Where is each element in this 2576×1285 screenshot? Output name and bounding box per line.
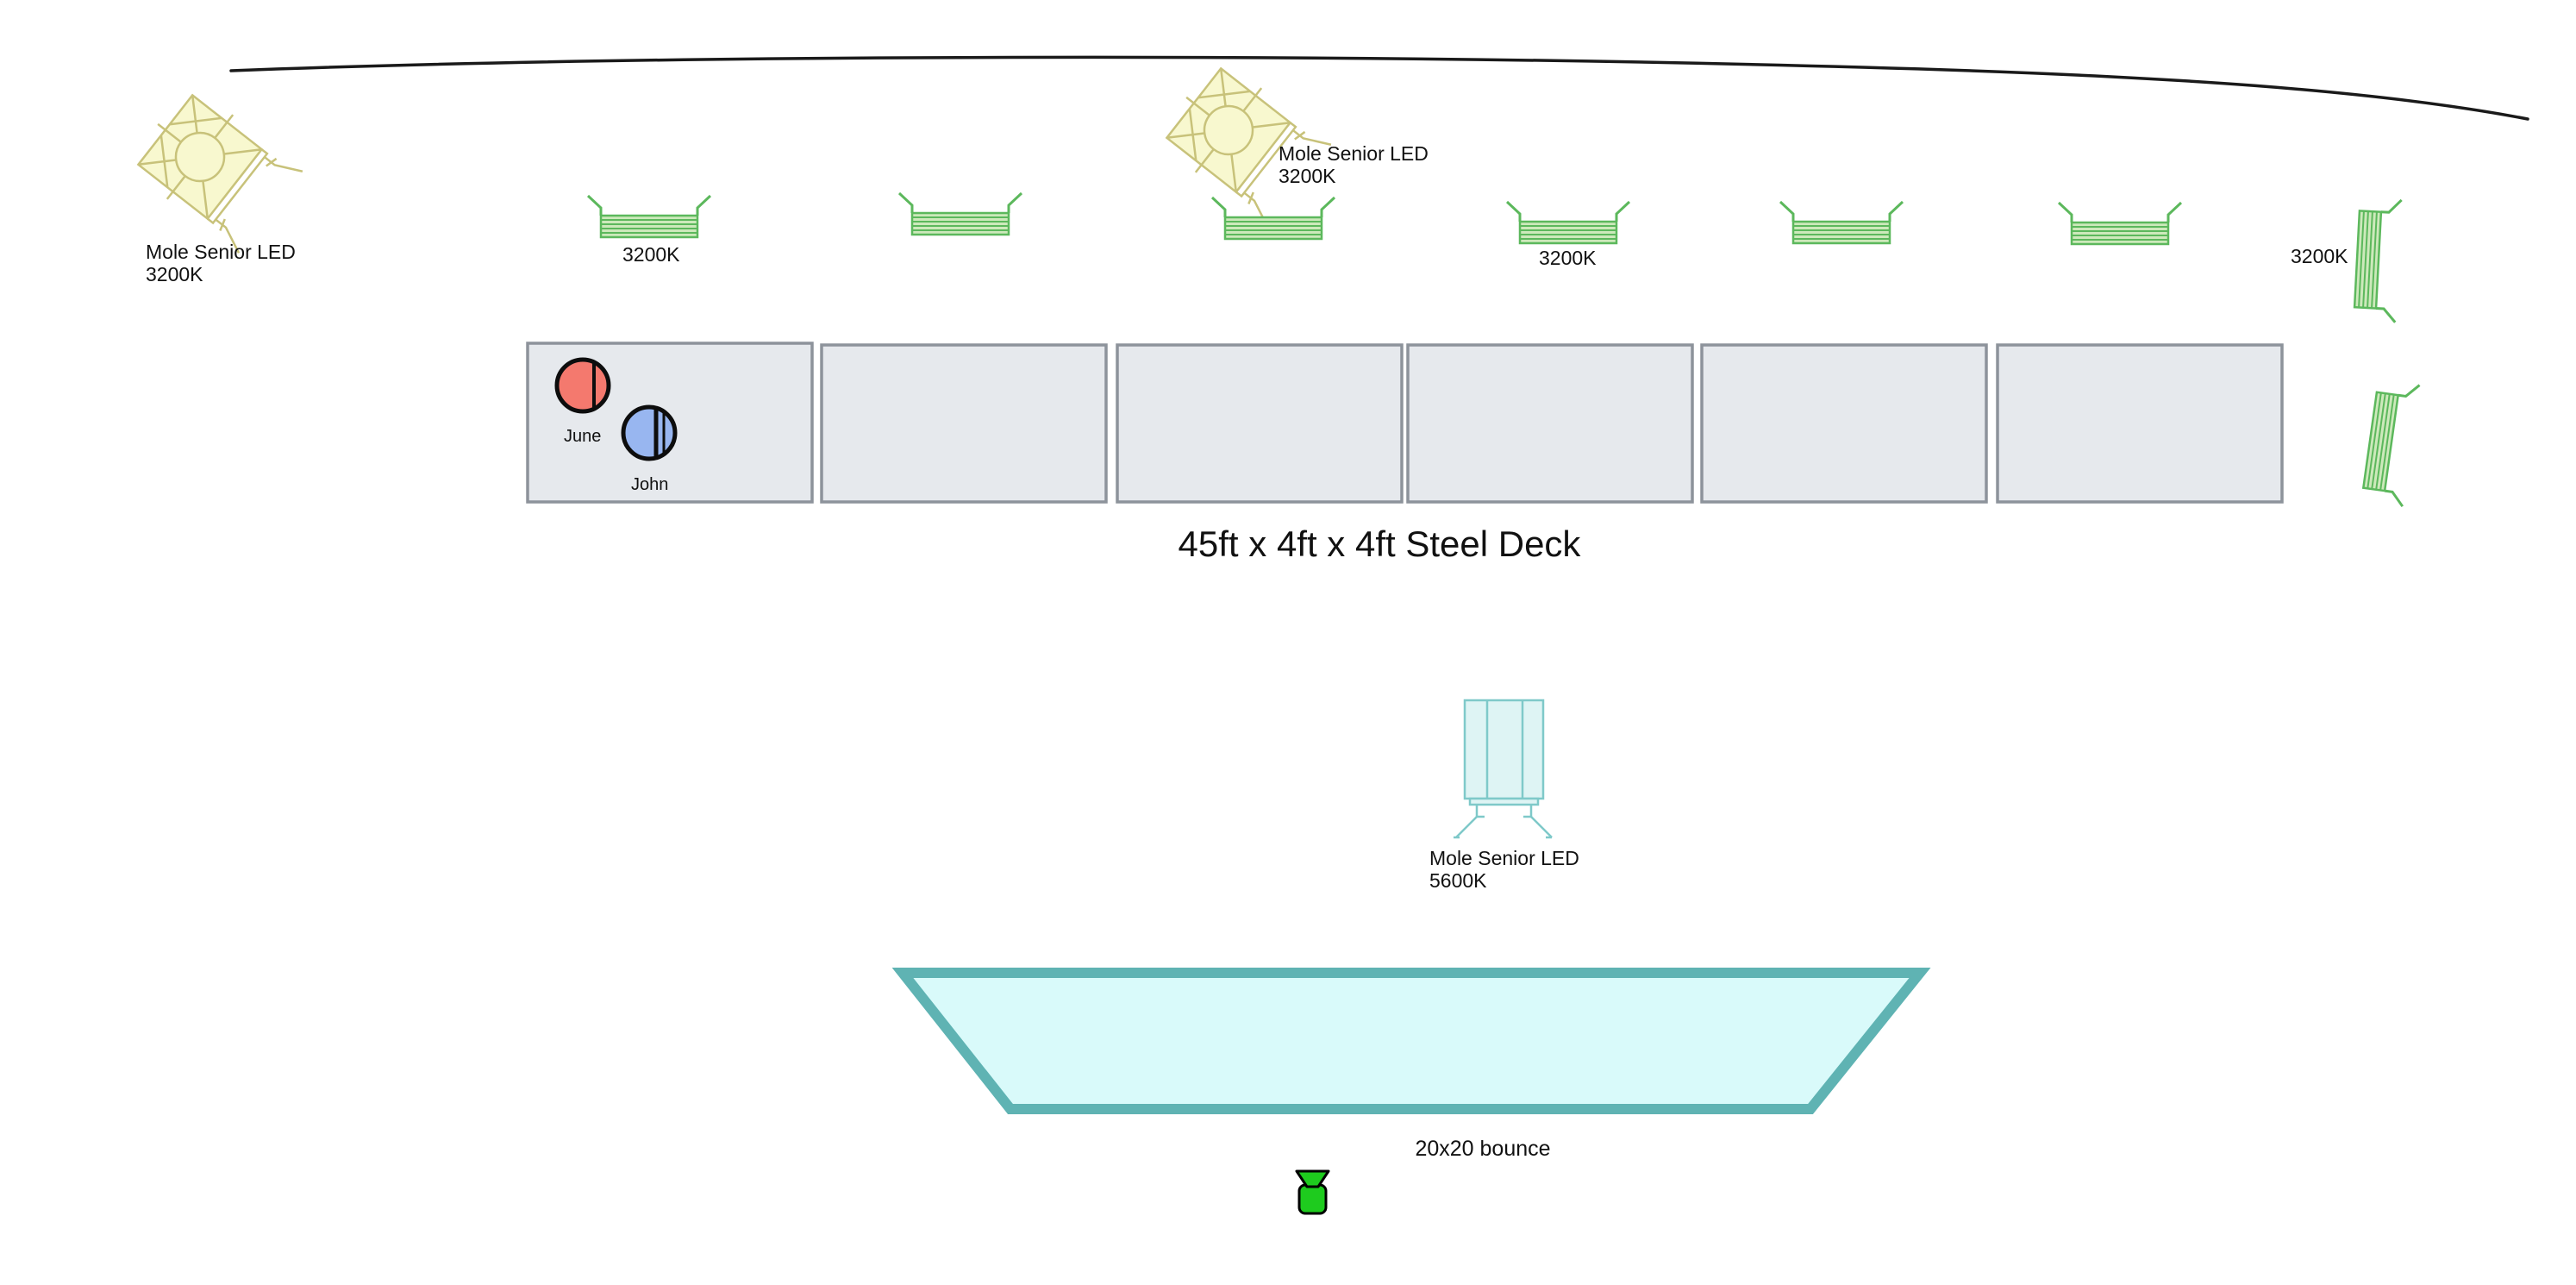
mole-5600-stand-legs <box>1454 817 1552 837</box>
mole-5600-body[interactable] <box>1465 700 1543 799</box>
mole-5600-yoke <box>1477 805 1531 817</box>
set-wall-curve[interactable] <box>231 57 2528 119</box>
mole-5600-front-plate <box>1470 799 1538 805</box>
led-panel-light-6[interactable] <box>2059 203 2181 244</box>
bounce-label: 20x20 bounce <box>1415 1137 1550 1161</box>
deck-panel-3[interactable] <box>1117 345 1402 502</box>
actor-john-circle[interactable] <box>623 407 675 459</box>
actor-june-circle[interactable] <box>557 360 609 411</box>
led-panel-light-1[interactable] <box>588 196 710 237</box>
camera-body[interactable] <box>1299 1185 1326 1213</box>
steel-deck <box>528 343 2282 502</box>
bounce-frame[interactable] <box>903 973 1920 1109</box>
actor-john-label: John <box>631 475 668 494</box>
deck-label: 45ft x 4ft x 4ft Steel Deck <box>1179 523 1582 564</box>
actor-john[interactable] <box>623 407 675 459</box>
camera[interactable] <box>1297 1171 1329 1213</box>
panel-kelvin-label-right: 3200K <box>2291 245 2348 267</box>
fresnel-top-label-line1: Mole Senior LED <box>1279 142 1429 165</box>
camera-lens-cone <box>1297 1171 1329 1187</box>
led-panel-light-right-upper[interactable] <box>2354 197 2401 322</box>
fresnel-light-top[interactable] <box>1154 55 1332 228</box>
led-panel-light-4[interactable] <box>1507 202 1629 243</box>
mole-5600-label-line2: 5600K <box>1429 869 1487 892</box>
led-panel-light-right-lower[interactable] <box>2361 379 2419 506</box>
led-panel-light-3[interactable] <box>1212 197 1335 239</box>
led-panel-light-2[interactable] <box>899 193 1022 235</box>
stage-plot-canvas: Mole Senior LED 3200K Mole Senior LED 32… <box>0 0 2576 1285</box>
actor-june-label: June <box>564 427 601 446</box>
deck-panel-2[interactable] <box>822 345 1106 502</box>
mole-5600-label-line1: Mole Senior LED <box>1429 847 1579 869</box>
fresnel-left-label-line2: 3200K <box>146 263 203 285</box>
mole-5600-light[interactable] <box>1454 700 1552 837</box>
led-panel-light-5[interactable] <box>1780 202 1903 243</box>
deck-panel-5[interactable] <box>1702 345 1986 502</box>
actor-june[interactable] <box>557 360 609 411</box>
deck-panel-4[interactable] <box>1408 345 1692 502</box>
fresnel-light-left[interactable] <box>125 82 303 254</box>
panel-kelvin-label-left: 3200K <box>622 243 680 266</box>
fresnel-top-label-line2: 3200K <box>1279 165 1336 187</box>
stage-plot: Mole Senior LED 3200K Mole Senior LED 32… <box>0 0 2576 1285</box>
deck-panel-6[interactable] <box>1998 345 2282 502</box>
fresnel-left-label-line1: Mole Senior LED <box>146 241 296 263</box>
panel-kelvin-label-mid: 3200K <box>1539 247 1597 269</box>
